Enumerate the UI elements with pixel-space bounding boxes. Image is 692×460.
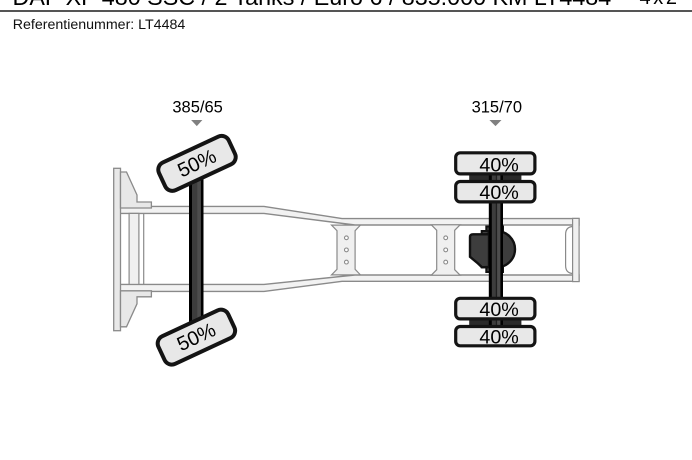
svg-text:40%: 40%	[479, 154, 518, 176]
svg-text:315/70: 315/70	[472, 98, 522, 116]
svg-text:40%: 40%	[479, 182, 518, 204]
svg-text:385/65: 385/65	[172, 98, 222, 116]
svg-text:40%: 40%	[479, 299, 518, 321]
svg-text:40%: 40%	[479, 326, 518, 348]
